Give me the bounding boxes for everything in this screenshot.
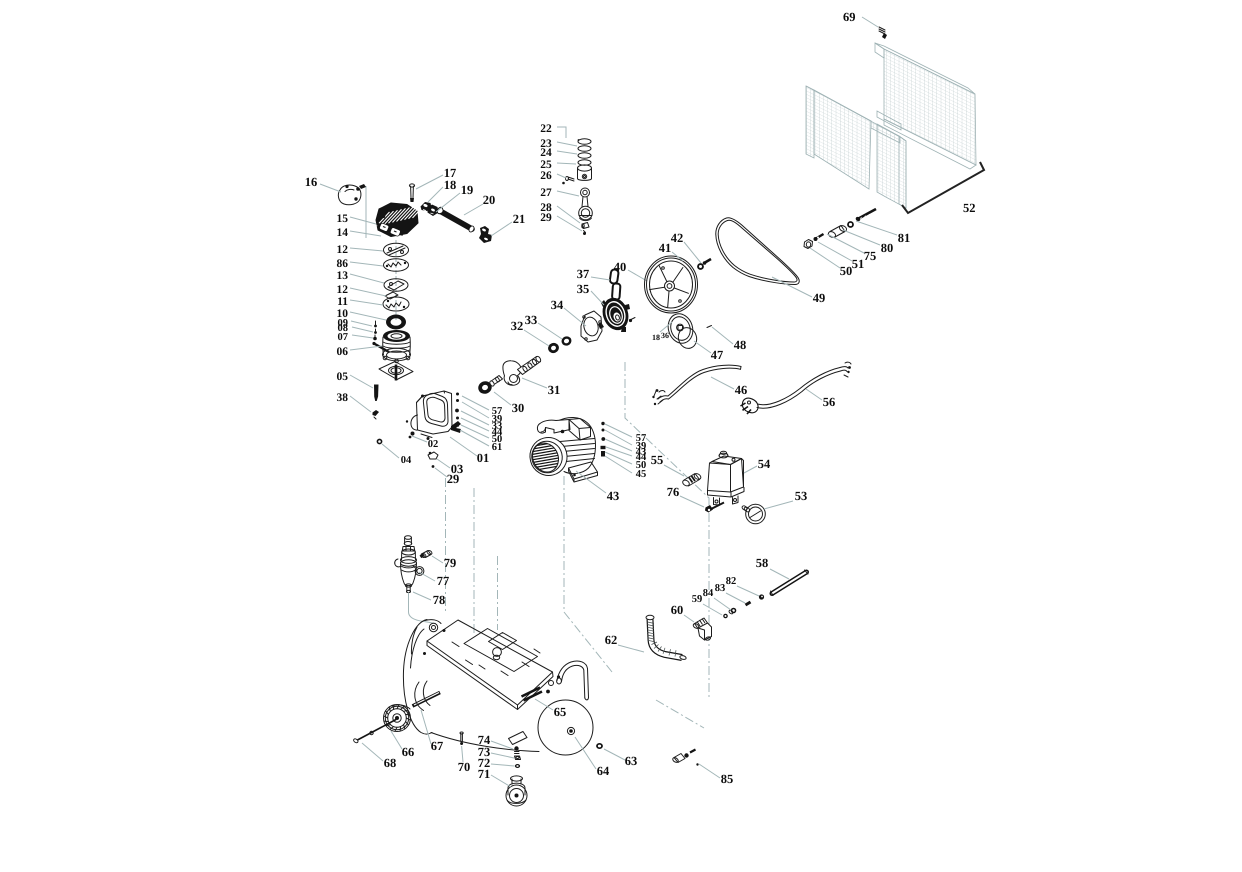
svg-text:33: 33	[525, 313, 538, 327]
svg-text:75: 75	[864, 249, 877, 263]
svg-text:19: 19	[461, 183, 474, 197]
svg-text:48: 48	[734, 338, 747, 352]
svg-text:29: 29	[447, 472, 460, 486]
svg-text:27: 27	[540, 187, 552, 199]
svg-text:21: 21	[513, 212, 526, 226]
svg-text:65: 65	[554, 705, 567, 719]
svg-text:47: 47	[711, 348, 724, 362]
svg-text:50: 50	[840, 264, 853, 278]
svg-text:68: 68	[384, 756, 397, 770]
svg-text:82: 82	[726, 576, 737, 587]
svg-text:66: 66	[402, 745, 415, 759]
svg-text:79: 79	[444, 556, 457, 570]
svg-text:64: 64	[597, 764, 610, 778]
svg-text:80: 80	[881, 241, 894, 255]
svg-text:12: 12	[337, 284, 349, 296]
svg-text:43: 43	[607, 489, 620, 503]
svg-text:20: 20	[483, 193, 496, 207]
svg-text:37: 37	[577, 267, 590, 281]
svg-text:51: 51	[852, 257, 865, 271]
svg-text:36: 36	[661, 331, 669, 340]
svg-text:31: 31	[548, 383, 561, 397]
svg-text:30: 30	[512, 401, 525, 415]
svg-text:56: 56	[823, 395, 836, 409]
svg-text:26: 26	[540, 170, 552, 182]
svg-text:70: 70	[458, 760, 471, 774]
svg-text:61: 61	[492, 442, 503, 453]
svg-text:71: 71	[478, 767, 491, 781]
svg-text:54: 54	[758, 457, 771, 471]
svg-text:22: 22	[540, 123, 552, 135]
svg-text:59: 59	[692, 594, 703, 605]
svg-text:58: 58	[756, 556, 769, 570]
svg-text:35: 35	[577, 282, 590, 296]
svg-text:69: 69	[843, 10, 856, 24]
svg-text:67: 67	[431, 739, 444, 753]
svg-text:29: 29	[540, 212, 552, 224]
svg-text:46: 46	[735, 383, 748, 397]
svg-text:15: 15	[337, 213, 349, 225]
svg-text:40: 40	[614, 260, 627, 274]
svg-text:86: 86	[337, 258, 349, 270]
svg-text:53: 53	[795, 489, 808, 503]
svg-text:62: 62	[605, 633, 618, 647]
svg-text:83: 83	[715, 583, 726, 594]
svg-text:04: 04	[401, 455, 412, 466]
svg-text:63: 63	[625, 754, 638, 768]
svg-text:18: 18	[444, 178, 457, 192]
svg-text:84: 84	[703, 588, 714, 599]
svg-text:24: 24	[540, 147, 552, 159]
svg-text:07: 07	[338, 332, 349, 343]
svg-text:38: 38	[337, 392, 349, 404]
svg-text:42: 42	[671, 231, 684, 245]
svg-text:77: 77	[437, 574, 450, 588]
svg-text:18: 18	[652, 333, 660, 342]
svg-text:01: 01	[477, 451, 490, 465]
svg-text:76: 76	[667, 485, 680, 499]
svg-text:55: 55	[651, 453, 664, 467]
svg-text:11: 11	[337, 296, 348, 308]
svg-text:02: 02	[428, 439, 439, 450]
svg-text:45: 45	[636, 469, 647, 480]
svg-text:78: 78	[433, 593, 446, 607]
svg-text:14: 14	[337, 227, 349, 239]
svg-text:13: 13	[337, 270, 349, 282]
svg-text:52: 52	[963, 201, 976, 215]
svg-text:81: 81	[898, 231, 911, 245]
svg-text:32: 32	[511, 319, 524, 333]
svg-text:41: 41	[659, 241, 672, 255]
svg-text:06: 06	[337, 346, 349, 358]
svg-text:49: 49	[813, 291, 826, 305]
svg-text:60: 60	[671, 603, 684, 617]
svg-text:85: 85	[721, 772, 734, 786]
svg-text:34: 34	[551, 298, 564, 312]
svg-text:12: 12	[337, 244, 349, 256]
svg-text:16: 16	[305, 175, 318, 189]
svg-text:05: 05	[337, 371, 349, 383]
